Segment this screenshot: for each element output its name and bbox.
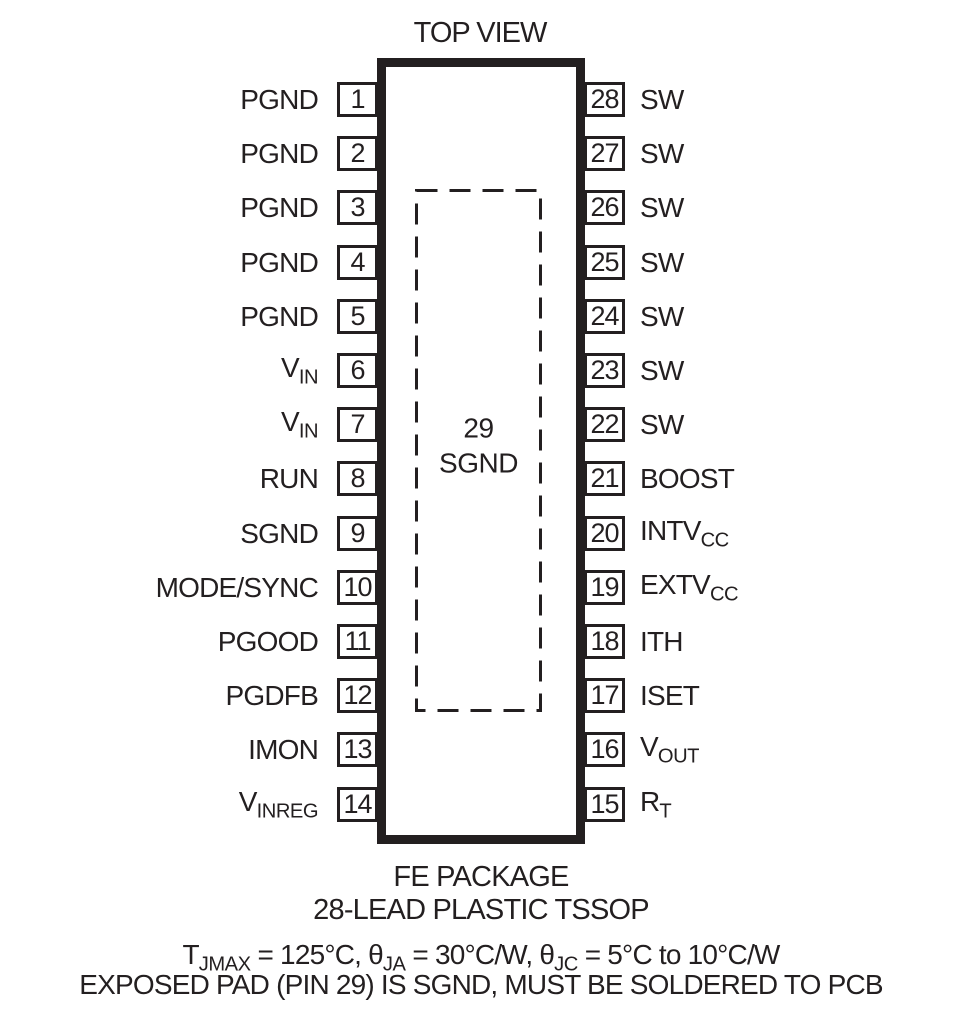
pin-label-21: BOOST <box>640 463 734 495</box>
pin-label-2: PGND <box>240 138 318 170</box>
pin-label-27: SW <box>640 138 684 170</box>
pin-number-box-22: 22 <box>584 407 625 442</box>
pin-label-23: SW <box>640 355 684 387</box>
pin-label-1: PGND <box>240 84 318 116</box>
pin-row-4: PGND4 <box>0 245 378 280</box>
pin-number-box-24: 24 <box>584 299 625 334</box>
exposed-pad: 29 SGND <box>415 189 542 712</box>
pin-number-box-1: 1 <box>337 82 378 117</box>
pin-row-20: 20INTVCC <box>584 516 729 551</box>
pin-label-22: SW <box>640 409 684 441</box>
pin-label-5: PGND <box>240 301 318 333</box>
pin-number-box-14: 14 <box>337 787 378 822</box>
pin-number-box-28: 28 <box>584 82 625 117</box>
pin-label-6: VIN <box>281 352 318 390</box>
top-view-title: TOP VIEW <box>280 17 680 50</box>
pin-label-14: VINREG <box>239 786 318 824</box>
pin-number-box-2: 2 <box>337 136 378 171</box>
pin-number-box-18: 18 <box>584 624 625 659</box>
pin-label-28: SW <box>640 84 684 116</box>
exposed-pad-name: SGND <box>415 445 542 480</box>
pin-number-box-4: 4 <box>337 245 378 280</box>
pin-row-10: MODE/SYNC10 <box>0 570 378 605</box>
pin-row-27: 27SW <box>584 136 684 171</box>
pin-row-7: VIN7 <box>0 407 378 442</box>
pinout-diagram: TOP VIEW 29 SGND PGND1PGND2PGND3PGND4PGN… <box>0 0 962 1017</box>
pin-number-box-5: 5 <box>337 299 378 334</box>
exposed-pad-note: EXPOSED PAD (PIN 29) IS SGND, MUST BE SO… <box>0 969 962 1001</box>
pin-number-box-6: 6 <box>337 353 378 388</box>
pin-number-box-19: 19 <box>584 570 625 605</box>
pin-row-9: SGND9 <box>0 516 378 551</box>
pin-row-22: 22SW <box>584 407 684 442</box>
exposed-pad-number: 29 <box>415 410 542 445</box>
pin-row-12: PGDFB12 <box>0 678 378 713</box>
pin-number-box-3: 3 <box>337 190 378 225</box>
pin-label-12: PGDFB <box>226 680 318 712</box>
pin-row-24: 24SW <box>584 299 684 334</box>
pin-label-15: RT <box>640 786 671 824</box>
pin-row-28: 28SW <box>584 82 684 117</box>
pin-number-box-16: 16 <box>584 732 625 767</box>
pin-label-7: VIN <box>281 406 318 444</box>
pin-label-19: EXTVCC <box>640 569 738 607</box>
pin-row-17: 17ISET <box>584 678 699 713</box>
pin-label-9: SGND <box>240 518 318 550</box>
pin-label-18: ITH <box>640 626 683 658</box>
pin-label-26: SW <box>640 192 684 224</box>
pin-row-14: VINREG14 <box>0 787 378 822</box>
pin-label-3: PGND <box>240 192 318 224</box>
pin-label-10: MODE/SYNC <box>156 572 318 604</box>
pin-number-box-8: 8 <box>337 461 378 496</box>
pin-number-box-27: 27 <box>584 136 625 171</box>
pin-number-box-26: 26 <box>584 190 625 225</box>
pin-number-box-12: 12 <box>337 678 378 713</box>
pin-row-13: IMON13 <box>0 732 378 767</box>
pin-label-24: SW <box>640 301 684 333</box>
pin-row-18: 18ITH <box>584 624 683 659</box>
pin-number-box-11: 11 <box>337 624 378 659</box>
pin-row-26: 26SW <box>584 190 684 225</box>
pin-label-11: PGOOD <box>218 626 318 658</box>
pin-label-20: INTVCC <box>640 515 729 553</box>
pin-row-25: 25SW <box>584 245 684 280</box>
exposed-pad-label: 29 SGND <box>415 410 542 480</box>
package-name-line2: 28-LEAD PLASTIC TSSOP <box>0 894 962 927</box>
pin-number-box-10: 10 <box>337 570 378 605</box>
pin-row-3: PGND3 <box>0 190 378 225</box>
pin-row-23: 23SW <box>584 353 684 388</box>
pin-row-6: VIN6 <box>0 353 378 388</box>
pin-row-21: 21BOOST <box>584 461 734 496</box>
pin-label-8: RUN <box>260 463 318 495</box>
pin-label-13: IMON <box>248 734 318 766</box>
pin-number-box-13: 13 <box>337 732 378 767</box>
pin-row-11: PGOOD11 <box>0 624 378 659</box>
pin-label-25: SW <box>640 247 684 279</box>
pin-row-1: PGND1 <box>0 82 378 117</box>
pin-number-box-21: 21 <box>584 461 625 496</box>
pin-label-4: PGND <box>240 247 318 279</box>
pin-row-2: PGND2 <box>0 136 378 171</box>
pin-number-box-15: 15 <box>584 787 625 822</box>
pin-label-17: ISET <box>640 680 699 712</box>
pin-number-box-23: 23 <box>584 353 625 388</box>
pin-row-5: PGND5 <box>0 299 378 334</box>
pin-label-16: VOUT <box>640 731 699 769</box>
pin-number-box-17: 17 <box>584 678 625 713</box>
pin-number-box-9: 9 <box>337 516 378 551</box>
pin-number-box-25: 25 <box>584 245 625 280</box>
pin-row-16: 16VOUT <box>584 732 699 767</box>
pin-row-15: 15RT <box>584 787 671 822</box>
pin-row-19: 19EXTVCC <box>584 570 738 605</box>
package-name-line1: FE PACKAGE <box>0 861 962 894</box>
pin-number-box-20: 20 <box>584 516 625 551</box>
pin-number-box-7: 7 <box>337 407 378 442</box>
pin-row-8: RUN8 <box>0 461 378 496</box>
